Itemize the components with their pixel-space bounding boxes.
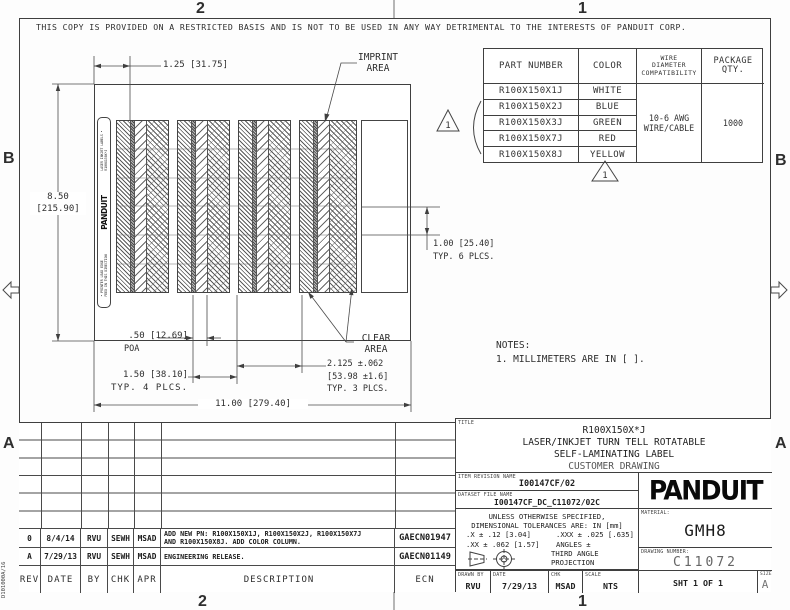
flag-1-number: 1 <box>602 171 607 181</box>
clear-area-label: CLEAR AREA <box>350 333 402 355</box>
left-zone-arrow-icon <box>3 282 19 298</box>
dim-sheet-height: 8.50 [215.90] <box>30 192 86 215</box>
zone-center-arrows <box>3 282 787 298</box>
dim-row-height: 1.00 [25.40] TYP. 6 PLCS. <box>433 238 494 263</box>
dim-pitch-sub: TYP. 4 PLCS. <box>86 383 188 393</box>
dim-label-width: 2.125 ±.062 [53.98 ±1.6] TYP. 3 PLCS. <box>327 358 388 396</box>
dim-sheet-width: 11.00 [279.40] <box>198 399 308 409</box>
dim-poa-sub: POA <box>124 344 139 354</box>
right-zone-arrow-icon <box>771 282 787 298</box>
flag-1-number: 1 <box>445 121 450 131</box>
engineering-drawing-sheet: 2 1 2 1 B A B A THIS COPY IS PROVIDED ON… <box>0 0 790 610</box>
dimension-arrowheads <box>56 64 429 407</box>
dim-pitch: 1.50 [38.10] <box>98 370 188 380</box>
imprint-area-label: IMPRINT AREA <box>347 52 409 74</box>
note-flag-triangles <box>437 101 618 181</box>
dimension-lines-layer: 1 1 <box>0 0 790 610</box>
dim-first-column: 1.25 [31.75] <box>163 60 228 70</box>
dim-poa: .50 [12.69] <box>98 331 188 341</box>
